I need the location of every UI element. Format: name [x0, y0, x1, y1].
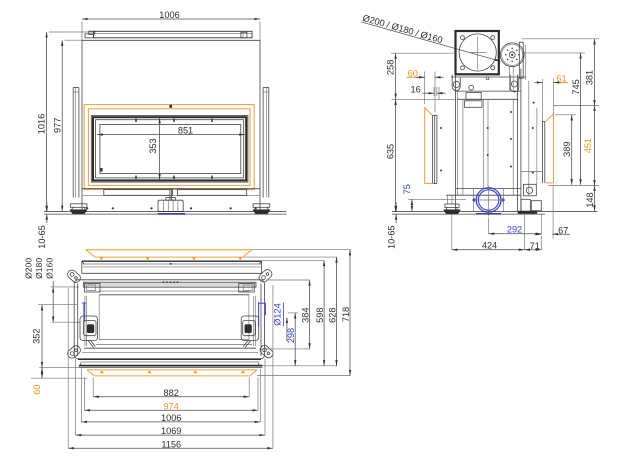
svg-text:61: 61 — [556, 74, 566, 84]
svg-text:60: 60 — [32, 384, 42, 394]
svg-text:598: 598 — [315, 308, 325, 323]
svg-text:353: 353 — [148, 138, 158, 153]
svg-text:424: 424 — [482, 241, 497, 251]
svg-text:71: 71 — [530, 241, 540, 251]
svg-text:Ø200 / Ø180 / Ø160: Ø200 / Ø180 / Ø160 — [361, 13, 443, 45]
svg-text:10-65: 10-65 — [37, 225, 47, 249]
svg-text:745: 745 — [571, 79, 581, 94]
svg-text:Ø160: Ø160 — [45, 258, 55, 279]
svg-text:1016: 1016 — [36, 114, 46, 134]
svg-text:148: 148 — [585, 192, 595, 207]
svg-text:384: 384 — [301, 308, 311, 323]
svg-text:389: 389 — [562, 142, 572, 157]
svg-text:977: 977 — [53, 118, 63, 133]
svg-text:381: 381 — [585, 70, 595, 85]
svg-text:Ø124: Ø124 — [273, 303, 283, 325]
svg-text:718: 718 — [341, 307, 351, 322]
svg-text:298: 298 — [286, 328, 296, 343]
svg-text:974: 974 — [164, 401, 179, 411]
svg-text:75: 75 — [402, 184, 412, 194]
svg-text:258: 258 — [386, 60, 396, 75]
svg-text:1006: 1006 — [161, 413, 181, 423]
svg-text:1156: 1156 — [161, 439, 181, 449]
svg-text:628: 628 — [328, 308, 338, 323]
svg-text:60: 60 — [408, 68, 418, 78]
svg-text:1006: 1006 — [159, 10, 179, 20]
svg-text:635: 635 — [386, 144, 396, 159]
svg-text:851: 851 — [178, 126, 193, 136]
svg-text:10-65: 10-65 — [386, 225, 396, 249]
svg-text:882: 882 — [164, 388, 179, 398]
svg-text:16: 16 — [410, 84, 420, 94]
svg-text:352: 352 — [32, 329, 42, 344]
svg-text:1069: 1069 — [161, 426, 181, 436]
svg-text:67: 67 — [558, 225, 568, 235]
svg-text:451: 451 — [583, 138, 593, 153]
svg-text:Ø180: Ø180 — [34, 258, 44, 279]
svg-text:292: 292 — [507, 225, 522, 235]
svg-text:Ø200: Ø200 — [23, 258, 33, 279]
